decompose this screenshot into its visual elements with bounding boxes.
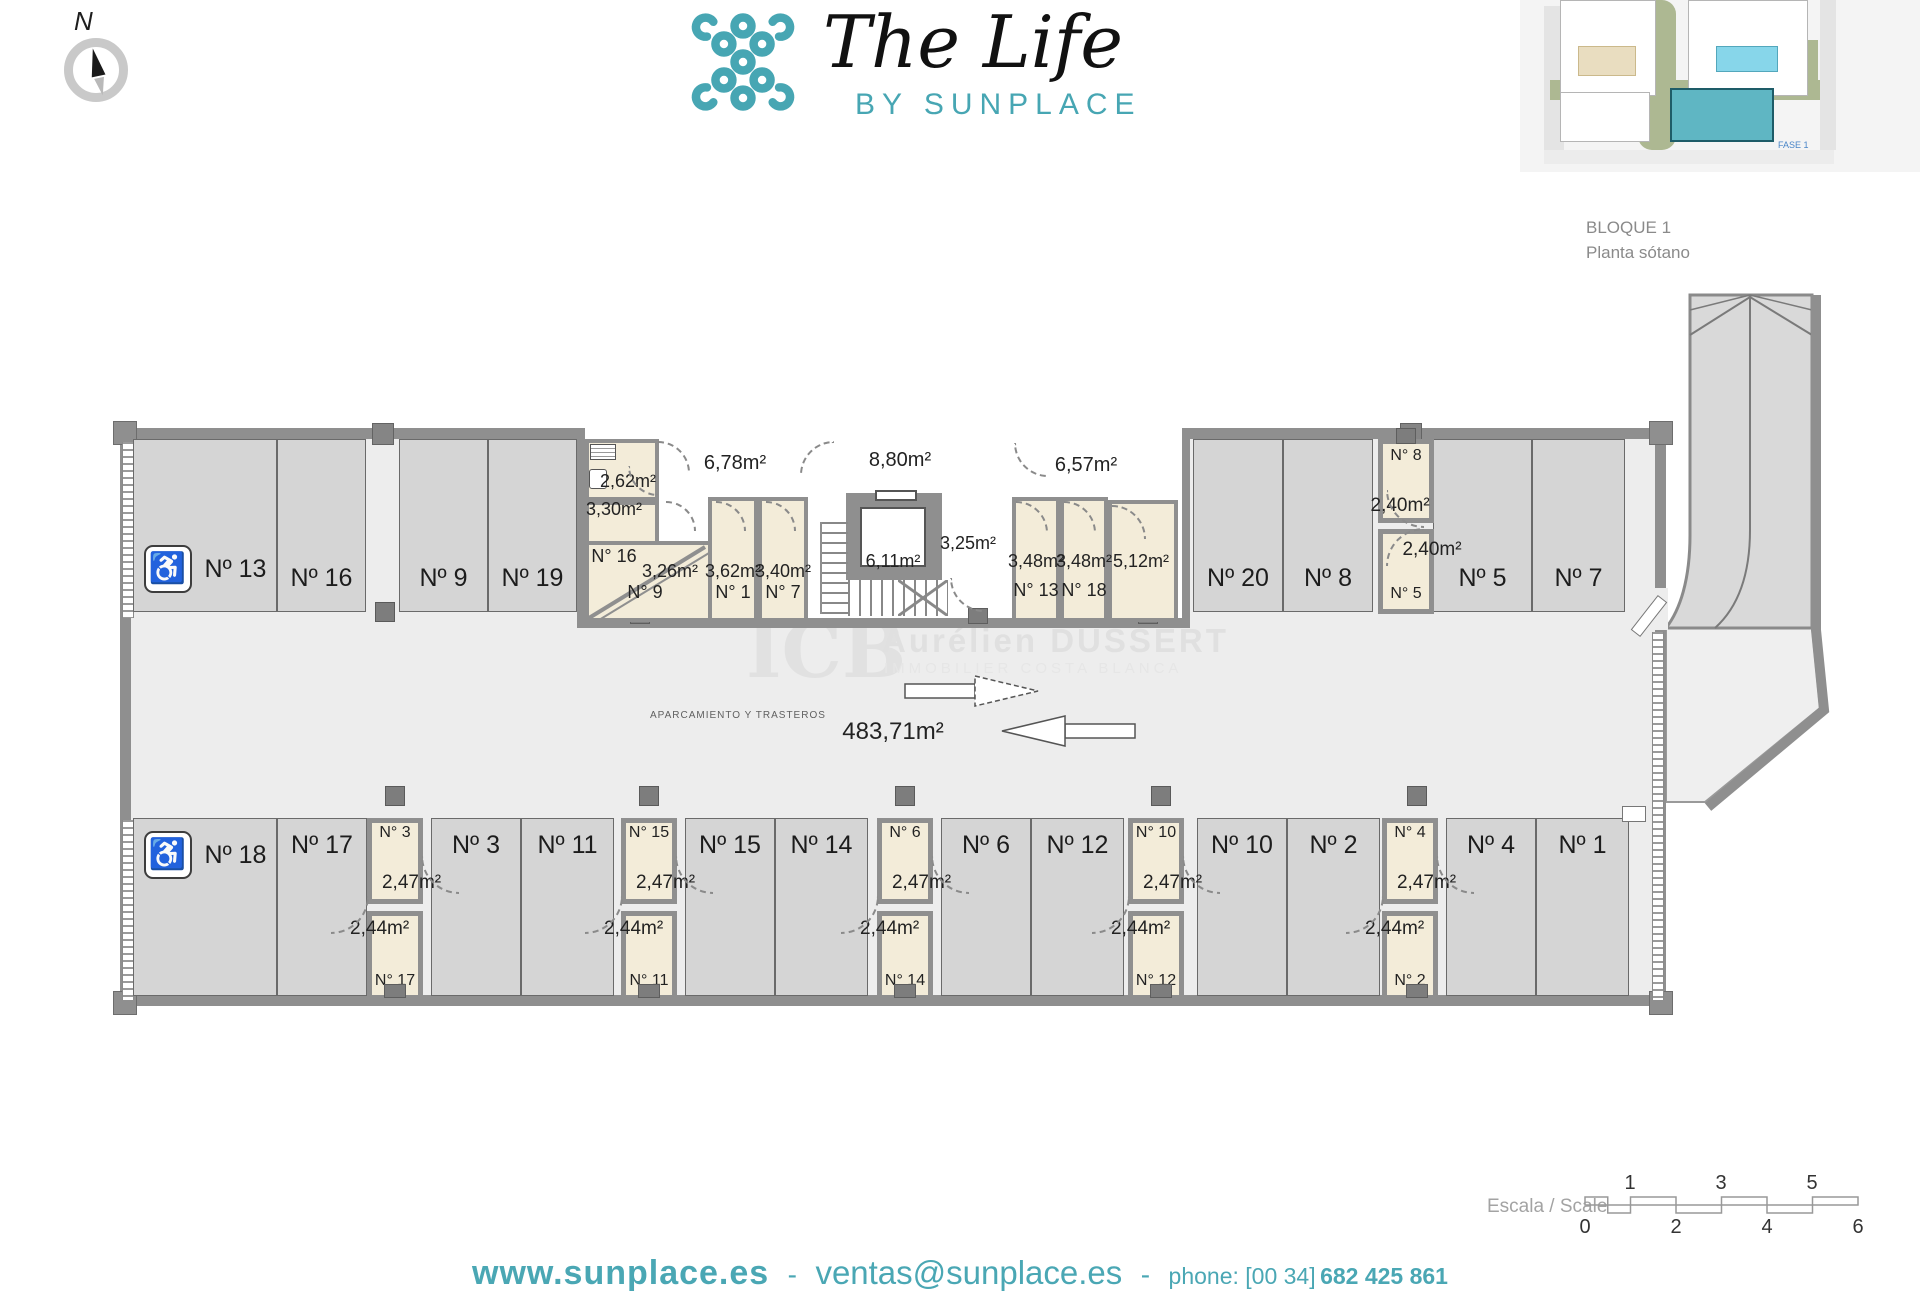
room-area-label: 5,12m² [1113,551,1169,572]
parking-label: Nº 4 [1467,831,1515,860]
room-label: N° 1 [715,582,750,603]
scale-tick: 2 [1670,1216,1681,1239]
parking-space: Nº 19 [488,439,577,612]
room-area-label: 6,78m² [704,452,766,475]
storage-column: N° 6 2,47m² 2,44m² N° 14 [877,818,933,1000]
core-wall-right [1182,428,1190,628]
room-area-label: 8,80m² [869,449,931,472]
parking-space: ♿ Nº 18 [133,818,277,996]
footer-separator: - [1127,1259,1164,1290]
wall-pilaster [372,423,394,445]
staircase [820,522,848,614]
parking-label: Nº 12 [1047,831,1109,860]
storage-label: N° 8 [1390,447,1421,465]
room-label: N° 13 [1013,580,1058,601]
wall-stub [894,984,916,998]
structural-column [895,786,915,806]
room-area-label: 3,40m² [755,561,811,582]
site-building-highlighted [1670,88,1774,142]
parking-space: Nº 3 [431,818,521,996]
parking-label: Nº 9 [419,564,467,593]
room-area-label: 3,48m² [1056,551,1112,572]
wall-stub [638,984,660,998]
footer-phone-number: 682 425 861 [1320,1263,1448,1289]
parking-space: Nº 1 [1536,818,1629,996]
site-plan-thumbnail: FASE 1 [1520,0,1920,172]
site-building [1560,92,1650,142]
logo-subtitle: BY SUNPLACE [855,88,1142,122]
parking-space: Nº 10 [1197,818,1287,996]
parking-label: Nº 20 [1207,564,1269,593]
footer-phone-label: phone: [00 34] [1169,1263,1316,1289]
wheelchair-icon: ♿ [144,831,192,879]
parking-label: Nº 3 [452,831,500,860]
wall-stub [384,984,406,998]
parking-label: Nº 6 [962,831,1010,860]
parking-label: Nº 13 [205,555,267,584]
parking-space: ♿ Nº 13 [133,439,277,612]
storage-column: N° 3 2,47m² 2,44m² N° 17 [367,818,423,1000]
parking-space: Nº 16 [277,439,366,612]
parking-label: Nº 10 [1211,831,1273,860]
block-title: BLOQUE 1 [1586,216,1690,241]
parking-space: Nº 15 [685,818,775,996]
storage-label: N° 3 [379,824,410,842]
room-area-label: 3,25m² [940,533,996,554]
parking-label: Nº 14 [791,831,853,860]
lift-door [875,490,917,501]
room-label: N° 9 [627,582,662,603]
parking-space: Nº 9 [399,439,488,612]
parking-space: Nº 6 [941,818,1031,996]
parking-label: Nº 2 [1309,831,1357,860]
parking-label: Nº 8 [1304,564,1352,593]
storage-column: N° 10 2,47m² 2,44m² N° 12 [1128,818,1184,1000]
scale-tick: 3 [1715,1172,1726,1195]
garage-use-label: APARCAMIENTO Y TRASTEROS [650,710,826,721]
storage-label: N° 4 [1394,824,1425,842]
site-deck [1578,46,1636,76]
storage-column: N° 4 2,47m² 2,44m² N° 2 [1382,818,1438,1000]
staircase-break-line [898,580,948,616]
parking-label: Nº 19 [502,564,564,593]
room-label: N° 18 [1061,580,1106,601]
parking-space: Nº 20 [1193,439,1283,612]
wall-stub [1396,428,1416,444]
storage-column: N° 15 2,47m² 2,44m² N° 11 [621,818,677,1000]
shelf-fixture-icon [590,444,616,460]
storage-column: N° 8 2,40m² 2,40m² N° 5 [1378,439,1434,614]
storage-label: N° 15 [629,824,669,842]
wheelchair-icon: ♿ [144,545,192,593]
structural-column [375,602,395,622]
parking-space: Nº 7 [1532,439,1625,612]
site-phase-label: FASE 1 [1778,140,1809,150]
block-subtitle: Planta sótano [1586,241,1690,266]
scale-tick: 4 [1761,1216,1772,1239]
traffic-arrows [890,660,1150,760]
logo-knot-icon [690,2,796,122]
site-road [1820,0,1836,150]
parking-label: Nº 16 [291,564,353,593]
storage-label: N° 5 [1390,585,1421,603]
parking-label: Nº 7 [1554,564,1602,593]
wall-hatch [1652,632,1664,1000]
footer-contact: www.sunplace.es - ventas@sunplace.es - p… [400,1254,1520,1293]
room-area-label: 6,11m² [866,551,921,572]
scale-tick: 6 [1852,1216,1863,1239]
wall-stub [1406,984,1428,998]
footer-separator: - [774,1259,811,1290]
footer-website: www.sunplace.es [472,1254,769,1292]
footer-email: ventas@sunplace.es [815,1254,1122,1291]
compass-north-label: N [74,6,93,37]
scale-tick: 0 [1579,1216,1590,1239]
structural-column [385,786,405,806]
storage-label: N° 6 [889,824,920,842]
wall-corner [1649,421,1673,445]
parking-space: Nº 4 [1446,818,1536,996]
structural-column [1407,786,1427,806]
parking-label: Nº 18 [205,841,267,870]
wall-stub [1150,984,1172,998]
parking-space: Nº 5 [1433,439,1532,612]
room-label: N° 7 [765,582,800,603]
parking-space: Nº 8 [1283,439,1373,612]
structural-column [1151,786,1171,806]
exit-door [1622,806,1646,822]
structural-column [639,786,659,806]
room-area-label: 3,30m² [586,499,642,520]
parking-label: Nº 17 [291,831,353,860]
parking-label: Nº 11 [537,831,597,860]
scale-tick: 5 [1806,1172,1817,1195]
storage-label: N° 10 [1136,824,1176,842]
scale-tick: 1 [1624,1172,1635,1195]
room-label: N° 16 [591,546,636,567]
parking-label: Nº 5 [1458,564,1506,593]
logo-title: The Life [823,0,1123,84]
room-area-label: 3,62m² [705,561,761,582]
site-pool [1716,46,1778,72]
plan-caption: BLOQUE 1 Planta sótano [1586,216,1690,265]
parking-label: Nº 1 [1558,831,1606,860]
core-wall-left [577,428,585,628]
room-area-label: 3,26m² [642,561,698,582]
room-area-label: 6,57m² [1055,454,1117,477]
site-road [1544,150,1834,164]
